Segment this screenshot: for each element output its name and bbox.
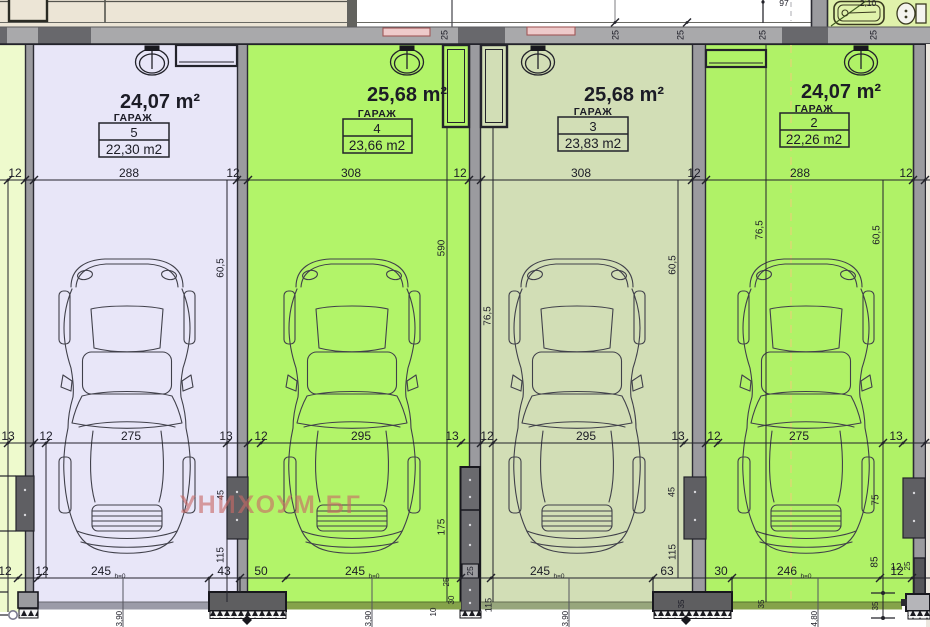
svg-text:25: 25 (439, 30, 449, 40)
svg-text:12: 12 (254, 429, 268, 443)
svg-text:h=0: h=0 (800, 573, 811, 580)
svg-text:43: 43 (217, 564, 231, 578)
svg-text:12: 12 (453, 166, 467, 180)
svg-text:115: 115 (216, 547, 227, 563)
svg-text:288: 288 (790, 166, 810, 180)
svg-text:24,07 m²: 24,07 m² (120, 91, 200, 113)
svg-text:-3,90: -3,90 (561, 610, 570, 627)
svg-text:246: 246 (777, 564, 797, 578)
svg-text:295: 295 (351, 429, 371, 443)
svg-text:h=0: h=0 (114, 573, 125, 580)
svg-text:35: 35 (757, 599, 766, 608)
svg-text:25: 25 (442, 577, 451, 586)
svg-text:50: 50 (254, 564, 268, 578)
svg-text:24,07 m²: 24,07 m² (801, 81, 881, 103)
svg-text:25,68 m²: 25,68 m² (584, 84, 664, 106)
svg-text:12: 12 (480, 429, 494, 443)
svg-text:12: 12 (8, 166, 22, 180)
svg-text:ГАРАЖ: ГАРАЖ (574, 106, 613, 118)
svg-text:76,5: 76,5 (483, 306, 494, 326)
svg-text:УНИХОУМ БГ: УНИХОУМ БГ (180, 491, 362, 519)
svg-text:60,5: 60,5 (668, 255, 679, 275)
svg-text:35: 35 (871, 601, 880, 610)
svg-text:4: 4 (373, 121, 380, 136)
svg-text:25: 25 (903, 561, 912, 570)
svg-text:h=0: h=0 (368, 573, 379, 580)
svg-text:10: 10 (429, 607, 438, 616)
svg-text:12: 12 (39, 429, 53, 443)
svg-text:308: 308 (341, 166, 361, 180)
svg-text:76,5: 76,5 (755, 220, 766, 240)
svg-text:12: 12 (687, 166, 701, 180)
svg-text:115: 115 (483, 598, 493, 612)
svg-text:25: 25 (465, 566, 475, 576)
svg-text:308: 308 (571, 166, 591, 180)
svg-text:5: 5 (130, 125, 137, 140)
svg-text:-3,90: -3,90 (115, 610, 124, 627)
svg-text:245: 245 (530, 564, 550, 578)
svg-text:12: 12 (899, 166, 913, 180)
svg-text:ГАРАЖ: ГАРАЖ (114, 112, 153, 124)
svg-text:175: 175 (437, 518, 448, 535)
svg-text:63: 63 (660, 564, 674, 578)
svg-text:23,66 m2: 23,66 m2 (349, 138, 405, 153)
svg-text:12: 12 (890, 562, 902, 573)
svg-text:35: 35 (677, 599, 686, 608)
svg-text:h=0: h=0 (553, 573, 564, 580)
svg-text:115: 115 (668, 544, 679, 560)
svg-text:22,30 m2: 22,30 m2 (106, 142, 162, 157)
svg-text:30: 30 (447, 595, 456, 604)
svg-text:25: 25 (610, 30, 620, 40)
svg-text:13: 13 (219, 429, 233, 443)
svg-text:245: 245 (91, 564, 111, 578)
svg-text:275: 275 (121, 429, 141, 443)
svg-text:ГАРАЖ: ГАРАЖ (358, 108, 397, 120)
svg-text:25: 25 (868, 30, 878, 40)
svg-text:45: 45 (666, 487, 676, 497)
svg-text:245: 245 (345, 564, 365, 578)
svg-text:12: 12 (0, 564, 12, 578)
svg-text:288: 288 (119, 166, 139, 180)
svg-text:12: 12 (35, 564, 49, 578)
svg-text:25: 25 (757, 30, 767, 40)
svg-text:60,5: 60,5 (872, 225, 883, 245)
svg-text:275: 275 (789, 429, 809, 443)
svg-text:25,68 m²: 25,68 m² (367, 84, 447, 106)
svg-text:2: 2 (810, 115, 817, 130)
svg-text:2,10: 2,10 (860, 0, 877, 8)
svg-text:295: 295 (576, 429, 596, 443)
svg-text:60,5: 60,5 (216, 258, 227, 278)
svg-text:590: 590 (437, 239, 448, 256)
svg-text:3: 3 (589, 119, 596, 134)
svg-text:23,83 m2: 23,83 m2 (565, 136, 621, 151)
svg-text:75: 75 (871, 494, 882, 506)
svg-text:97: 97 (779, 0, 789, 8)
svg-text:13: 13 (889, 429, 903, 443)
svg-text:-4,80: -4,80 (810, 610, 819, 627)
svg-text:30: 30 (714, 564, 728, 578)
svg-text:85: 85 (870, 556, 881, 568)
svg-text:12: 12 (226, 166, 240, 180)
svg-text:25: 25 (675, 30, 685, 40)
svg-text:12: 12 (707, 429, 721, 443)
svg-text:22,26 m2: 22,26 m2 (786, 132, 842, 147)
svg-text:-3,90: -3,90 (364, 610, 373, 627)
